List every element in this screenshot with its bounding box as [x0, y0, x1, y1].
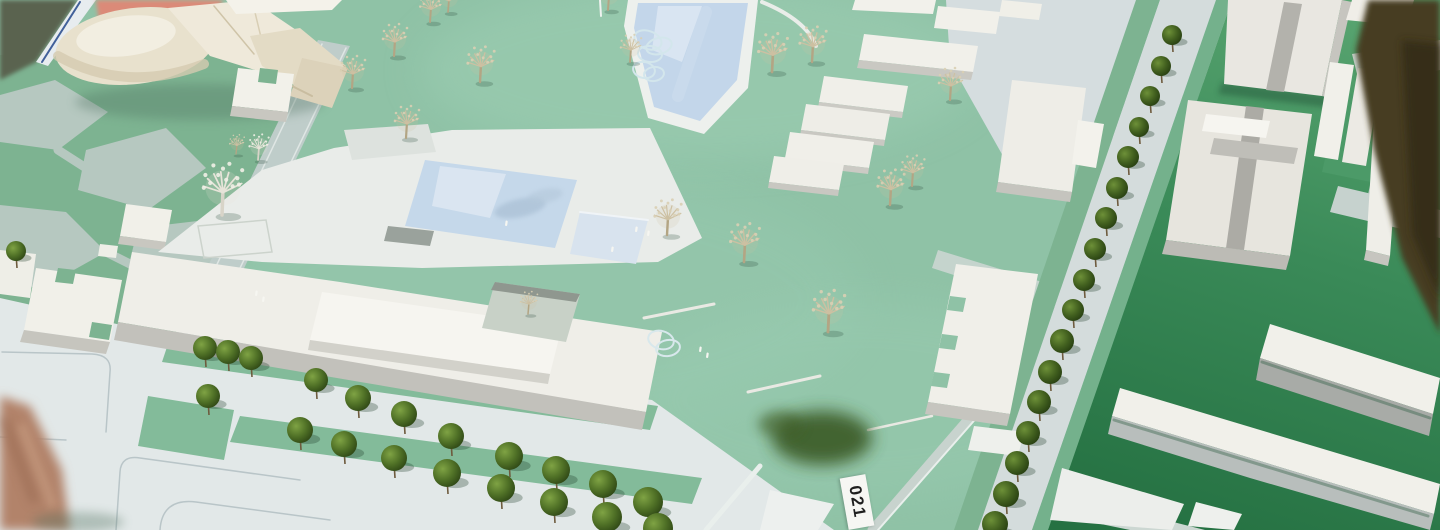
model-detail	[89, 322, 112, 340]
model-detail	[600, 0, 601, 16]
model-detail	[758, 411, 802, 437]
model-detail	[258, 68, 278, 84]
model-detail	[947, 296, 966, 312]
model-detail	[931, 372, 950, 388]
architectural-model-photograph: 021	[0, 0, 1440, 530]
model-detail	[55, 268, 76, 284]
model-detail	[98, 244, 118, 258]
model-scene	[0, 0, 1440, 530]
model-building	[998, 80, 1086, 192]
model-building	[120, 204, 172, 242]
model-detail	[939, 334, 958, 350]
